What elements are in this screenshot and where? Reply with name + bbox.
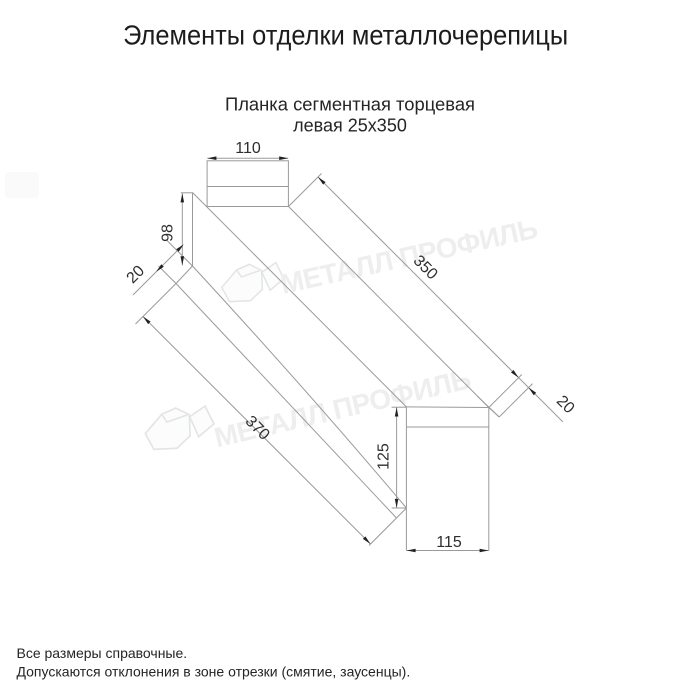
svg-text:115: 115 bbox=[436, 534, 462, 551]
svg-text:левая 25х350: левая 25х350 bbox=[293, 116, 407, 136]
svg-text:98: 98 bbox=[160, 224, 177, 242]
svg-text:Допускаются отклонения в зоне: Допускаются отклонения в зоне отрезки (с… bbox=[17, 664, 411, 680]
svg-text:Все размеры справочные.: Все размеры справочные. bbox=[17, 645, 188, 661]
svg-text:110: 110 bbox=[235, 140, 261, 157]
svg-text:Планка сегментная торцевая: Планка сегментная торцевая bbox=[225, 95, 475, 115]
svg-text:Элементы отделки металлочерепи: Элементы отделки металлочерепицы bbox=[123, 20, 568, 51]
svg-text:125: 125 bbox=[376, 443, 393, 470]
